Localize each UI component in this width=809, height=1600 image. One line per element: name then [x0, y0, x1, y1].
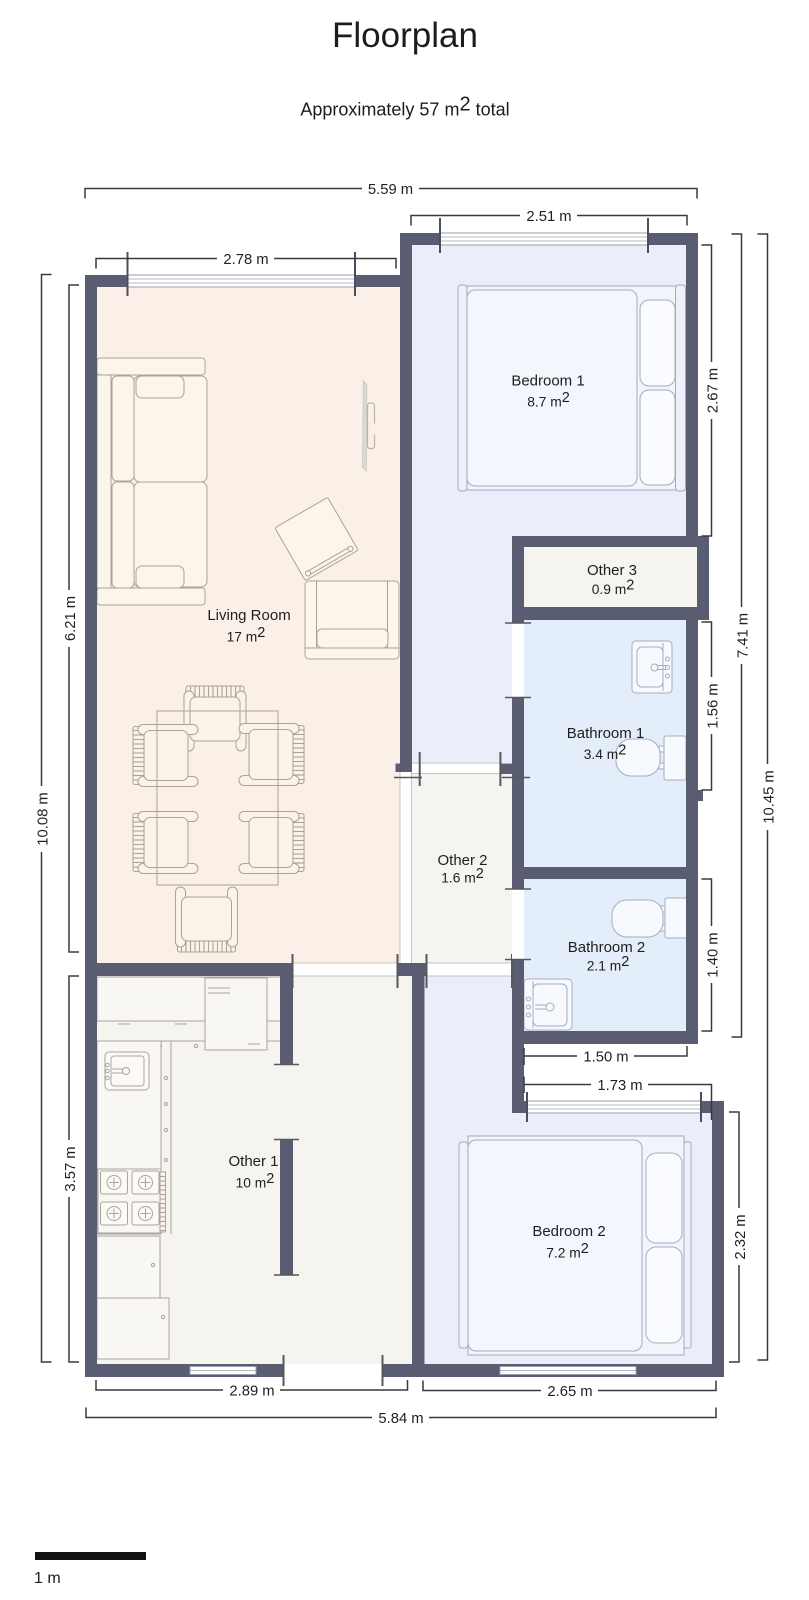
svg-text:1.40 m: 1.40 m — [706, 932, 722, 977]
svg-text:3.57 m: 3.57 m — [63, 1146, 79, 1191]
svg-text:Bathroom 2: Bathroom 2 — [568, 939, 646, 956]
svg-text:1.50 m: 1.50 m — [583, 1050, 628, 1066]
svg-text:Floorplan: Floorplan — [332, 16, 478, 55]
svg-text:10.08 m: 10.08 m — [36, 792, 52, 845]
svg-text:2.67 m: 2.67 m — [706, 368, 722, 413]
svg-text:5.84 m: 5.84 m — [378, 1411, 423, 1427]
svg-text:Other 3: Other 3 — [587, 562, 637, 579]
svg-text:2.32 m: 2.32 m — [733, 1214, 749, 1259]
svg-text:10.45 m: 10.45 m — [762, 770, 778, 823]
svg-text:Bedroom 2: Bedroom 2 — [532, 1223, 605, 1240]
svg-text:2.51 m: 2.51 m — [526, 209, 571, 225]
svg-text:2.78 m: 2.78 m — [223, 252, 268, 268]
svg-text:1.56 m: 1.56 m — [706, 683, 722, 728]
svg-text:Approximately 57 m2 total: Approximately 57 m2 total — [300, 94, 509, 120]
svg-text:7.41 m: 7.41 m — [736, 613, 752, 658]
svg-text:5.59 m: 5.59 m — [368, 182, 413, 198]
svg-text:1.73 m: 1.73 m — [597, 1078, 642, 1094]
svg-text:1 m: 1 m — [34, 1570, 61, 1587]
svg-text:Bedroom 1: Bedroom 1 — [511, 373, 584, 390]
svg-text:Bathroom 1: Bathroom 1 — [567, 725, 645, 742]
svg-text:6.21 m: 6.21 m — [63, 596, 79, 641]
svg-text:2.89 m: 2.89 m — [229, 1384, 274, 1400]
svg-text:Other 1: Other 1 — [228, 1153, 278, 1170]
svg-text:Living Room: Living Room — [207, 607, 290, 624]
svg-text:2.65 m: 2.65 m — [547, 1384, 592, 1400]
